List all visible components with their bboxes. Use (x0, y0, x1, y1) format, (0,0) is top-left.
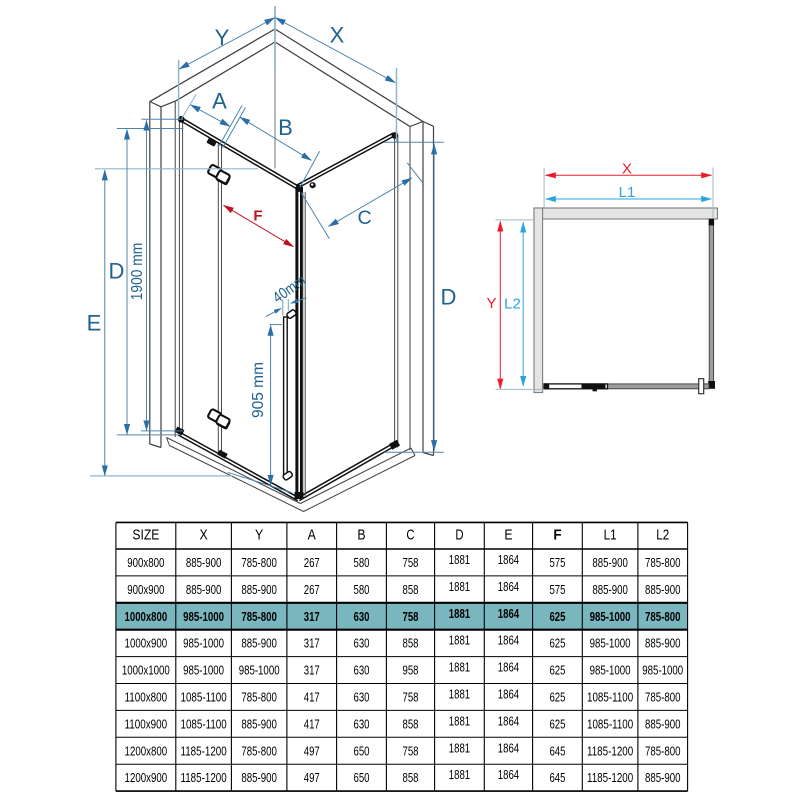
svg-text:905 mm: 905 mm (250, 362, 267, 418)
svg-text:1200x800: 1200x800 (125, 743, 168, 758)
svg-text:D: D (109, 259, 125, 284)
svg-text:L1: L1 (619, 184, 636, 201)
svg-text:317: 317 (304, 663, 320, 678)
svg-text:267: 267 (304, 555, 320, 570)
svg-text:X: X (330, 23, 345, 48)
svg-text:B: B (278, 115, 293, 140)
svg-text:1085-1100: 1085-1100 (587, 716, 633, 731)
svg-text:858: 858 (403, 582, 419, 597)
svg-text:785-800: 785-800 (241, 555, 277, 570)
svg-text:1085-1100: 1085-1100 (181, 689, 227, 704)
svg-text:B: B (357, 528, 365, 544)
svg-text:985-1000: 985-1000 (590, 636, 631, 651)
svg-text:1881: 1881 (449, 686, 470, 701)
svg-text:1864: 1864 (498, 660, 519, 675)
svg-text:1881: 1881 (449, 767, 470, 782)
svg-text:1185-1200: 1185-1200 (587, 770, 633, 785)
svg-text:885-900: 885-900 (241, 582, 277, 597)
svg-text:1085-1100: 1085-1100 (181, 716, 227, 731)
svg-text:1085-1100: 1085-1100 (587, 689, 633, 704)
svg-text:785-800: 785-800 (645, 743, 681, 758)
svg-text:1000x800: 1000x800 (125, 609, 168, 624)
svg-text:X: X (200, 528, 208, 544)
svg-text:858: 858 (403, 716, 419, 731)
svg-text:625: 625 (549, 663, 565, 678)
svg-text:630: 630 (354, 663, 370, 678)
svg-text:985-1000: 985-1000 (590, 609, 631, 624)
svg-text:785-800: 785-800 (645, 689, 681, 704)
svg-text:1100x800: 1100x800 (125, 689, 168, 704)
svg-text:A: A (308, 528, 316, 544)
svg-text:580: 580 (354, 555, 370, 570)
svg-text:D: D (455, 528, 463, 544)
svg-text:858: 858 (403, 636, 419, 651)
svg-text:650: 650 (354, 770, 370, 785)
svg-text:267: 267 (304, 582, 320, 597)
svg-text:625: 625 (549, 636, 565, 651)
svg-text:1864: 1864 (498, 579, 519, 594)
svg-text:1185-1200: 1185-1200 (181, 743, 227, 758)
svg-text:1185-1200: 1185-1200 (587, 743, 633, 758)
svg-text:1881: 1881 (449, 606, 470, 621)
svg-text:1864: 1864 (498, 552, 519, 567)
svg-text:1185-1200: 1185-1200 (181, 770, 227, 785)
svg-text:E: E (87, 311, 102, 336)
svg-text:1864: 1864 (498, 606, 520, 621)
svg-text:497: 497 (304, 743, 320, 758)
svg-text:985-1000: 985-1000 (183, 636, 224, 651)
svg-text:885-900: 885-900 (645, 716, 681, 731)
svg-text:958: 958 (403, 663, 419, 678)
svg-text:1864: 1864 (498, 713, 519, 728)
svg-text:1864: 1864 (498, 767, 519, 782)
svg-text:885-900: 885-900 (592, 555, 628, 570)
svg-text:885-900: 885-900 (645, 582, 681, 597)
svg-text:497: 497 (304, 770, 320, 785)
svg-text:645: 645 (549, 770, 565, 785)
svg-text:758: 758 (403, 609, 419, 624)
svg-text:D: D (441, 285, 457, 310)
svg-text:985-1000: 985-1000 (183, 663, 224, 678)
svg-text:X: X (622, 160, 632, 177)
svg-text:317: 317 (304, 636, 320, 651)
svg-text:A: A (212, 89, 227, 114)
svg-text:885-900: 885-900 (186, 555, 222, 570)
svg-text:900x900: 900x900 (127, 582, 164, 597)
svg-text:1000x1000: 1000x1000 (122, 663, 170, 678)
svg-text:758: 758 (403, 555, 419, 570)
svg-text:L1: L1 (604, 528, 617, 544)
svg-text:L2: L2 (504, 296, 521, 313)
svg-text:885-900: 885-900 (645, 636, 681, 651)
svg-text:985-1000: 985-1000 (642, 663, 683, 678)
svg-text:C: C (357, 207, 371, 229)
svg-text:625: 625 (549, 689, 565, 704)
svg-text:900x800: 900x800 (127, 555, 164, 570)
svg-text:885-900: 885-900 (186, 582, 222, 597)
svg-text:1864: 1864 (498, 686, 519, 701)
svg-text:1881: 1881 (449, 660, 470, 675)
svg-text:785-800: 785-800 (241, 689, 277, 704)
svg-text:1864: 1864 (498, 633, 519, 648)
svg-text:Y: Y (255, 528, 263, 544)
svg-text:575: 575 (549, 582, 565, 597)
svg-text:885-900: 885-900 (241, 636, 277, 651)
svg-text:650: 650 (354, 743, 370, 758)
svg-text:1200x900: 1200x900 (125, 770, 168, 785)
svg-text:1881: 1881 (449, 552, 470, 567)
svg-text:C: C (406, 528, 414, 544)
svg-text:317: 317 (304, 609, 320, 624)
svg-text:625: 625 (549, 716, 565, 731)
svg-text:L2: L2 (656, 528, 669, 544)
svg-text:645: 645 (549, 743, 565, 758)
svg-text:785-800: 785-800 (645, 555, 681, 570)
svg-text:SIZE: SIZE (132, 528, 159, 544)
svg-text:630: 630 (354, 636, 370, 651)
svg-text:1881: 1881 (449, 713, 470, 728)
svg-text:F: F (253, 207, 262, 224)
svg-text:630: 630 (354, 609, 370, 624)
svg-text:1000x900: 1000x900 (125, 636, 168, 651)
svg-text:1100x900: 1100x900 (125, 716, 168, 731)
svg-text:885-900: 885-900 (241, 716, 277, 731)
svg-text:630: 630 (354, 716, 370, 731)
svg-text:1881: 1881 (449, 579, 470, 594)
svg-text:785-800: 785-800 (241, 743, 277, 758)
svg-text:1864: 1864 (498, 740, 519, 755)
svg-text:575: 575 (549, 555, 565, 570)
svg-text:858: 858 (403, 770, 419, 785)
svg-text:630: 630 (354, 689, 370, 704)
svg-text:885-900: 885-900 (645, 770, 681, 785)
svg-text:885-900: 885-900 (241, 770, 277, 785)
svg-text:985-1000: 985-1000 (183, 609, 224, 624)
svg-text:758: 758 (403, 743, 419, 758)
svg-text:625: 625 (549, 609, 565, 624)
svg-text:885-900: 885-900 (592, 582, 628, 597)
svg-text:Y: Y (215, 25, 230, 50)
svg-text:785-800: 785-800 (645, 609, 681, 624)
svg-text:985-1000: 985-1000 (590, 663, 631, 678)
svg-text:785-800: 785-800 (241, 609, 277, 624)
svg-text:1881: 1881 (449, 633, 470, 648)
svg-text:Y: Y (486, 295, 496, 312)
svg-text:417: 417 (304, 716, 320, 731)
svg-text:1900 mm: 1900 mm (129, 243, 146, 301)
svg-text:F: F (553, 528, 561, 544)
svg-text:985-1000: 985-1000 (239, 663, 280, 678)
svg-text:417: 417 (304, 689, 320, 704)
svg-text:758: 758 (403, 689, 419, 704)
svg-text:1881: 1881 (449, 740, 470, 755)
svg-text:580: 580 (354, 582, 370, 597)
svg-text:E: E (504, 528, 512, 544)
